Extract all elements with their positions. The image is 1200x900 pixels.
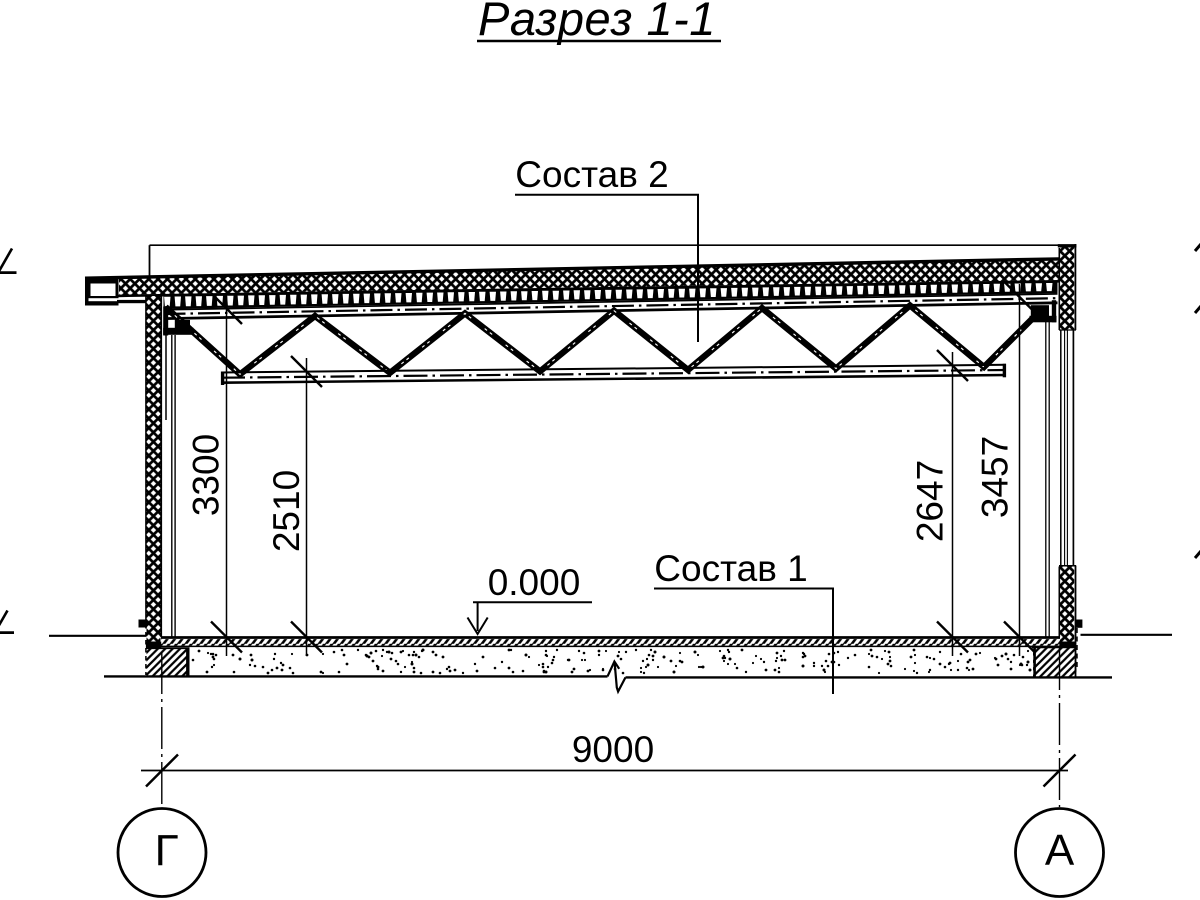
- svg-text:2510: 2510: [266, 470, 307, 552]
- svg-text:2647: 2647: [910, 460, 951, 542]
- svg-text:Состав 2: Состав 2: [515, 154, 668, 195]
- svg-text:3300: 3300: [186, 434, 227, 516]
- svg-text:Разрез 1-1: Разрез 1-1: [478, 0, 716, 45]
- svg-text:А: А: [1045, 826, 1075, 875]
- svg-text:Г: Г: [155, 826, 179, 875]
- svg-text:Состав 1: Состав 1: [654, 548, 807, 589]
- svg-text:9000: 9000: [572, 729, 654, 770]
- svg-text:0.000: 0.000: [488, 562, 581, 603]
- svg-text:3457: 3457: [975, 436, 1016, 518]
